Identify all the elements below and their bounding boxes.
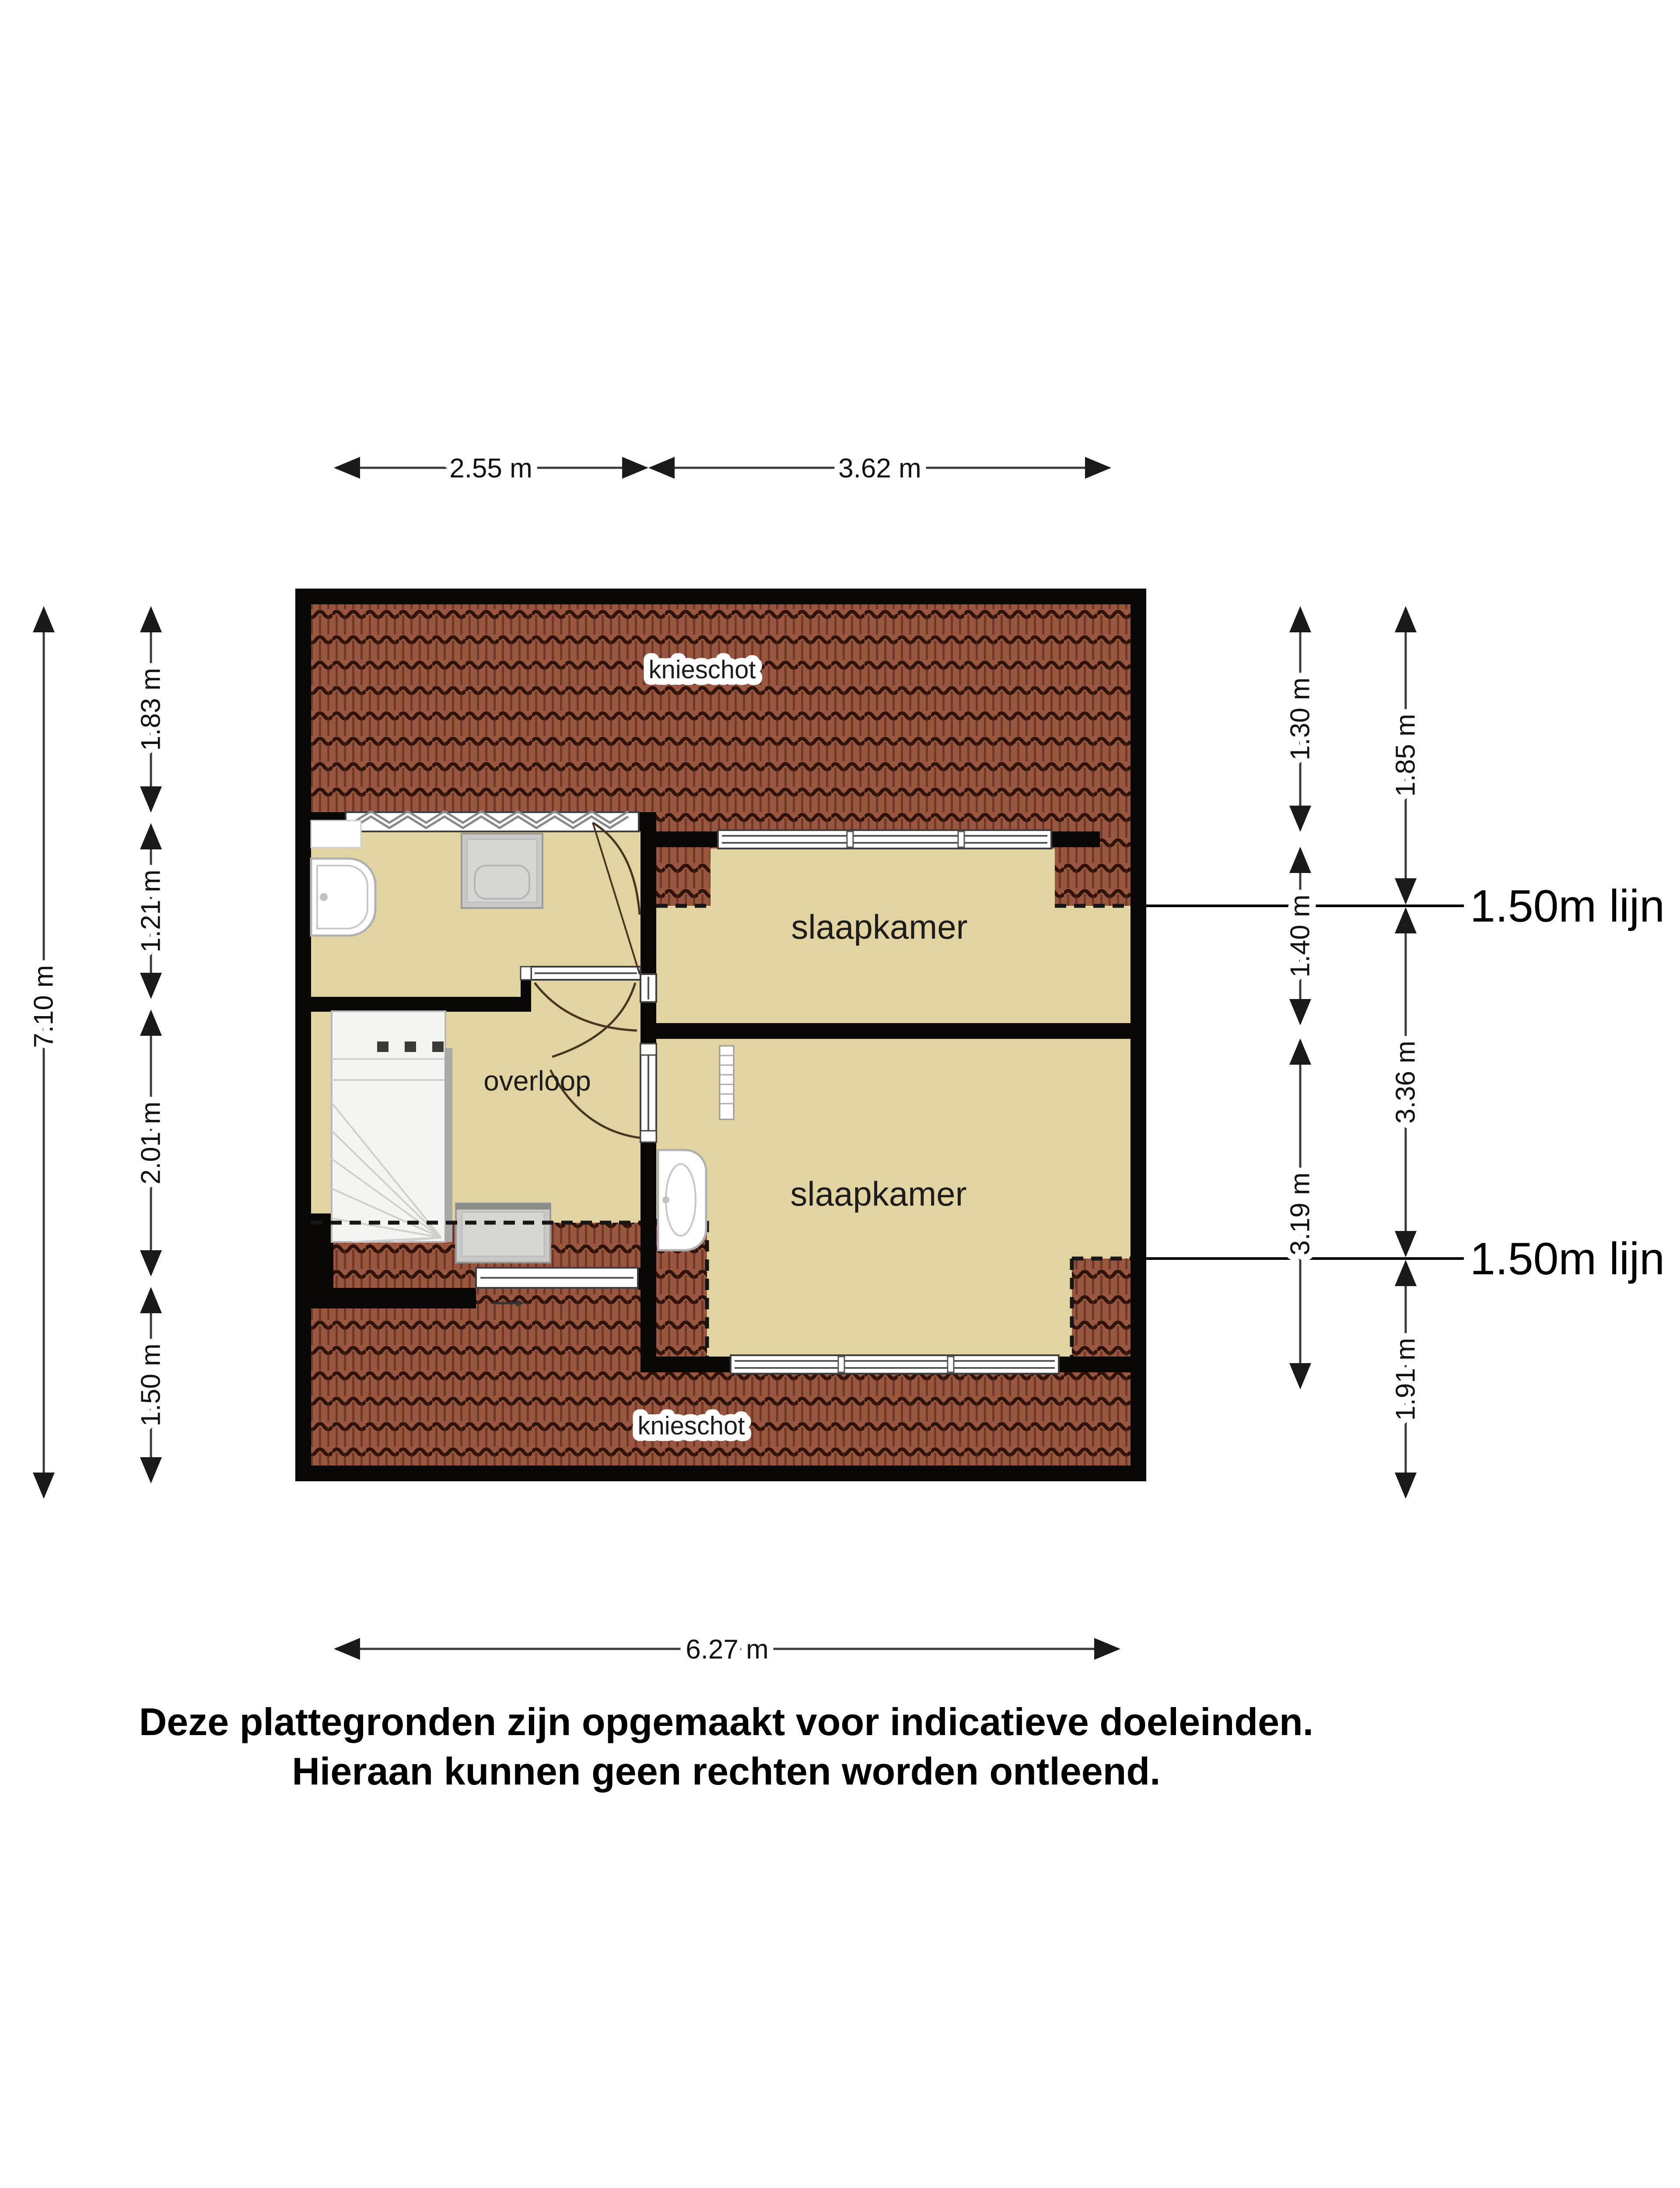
cabinet-overloop — [456, 1203, 550, 1262]
sink-slaapkamer-bottom — [658, 1150, 706, 1250]
door-overloop-topleft — [521, 967, 640, 980]
baluster-icon — [405, 1041, 416, 1052]
dim-left-2: 1.21 m — [136, 870, 166, 953]
dim-left-1: 1.83 m — [136, 668, 166, 751]
baluster-icon — [377, 1041, 388, 1052]
dim-right-outer-2: 3.36 m — [1391, 1041, 1421, 1124]
room-label-slaapkamer-bottom: slaapkamer — [790, 1175, 966, 1213]
bathtub — [311, 859, 375, 936]
room-label-slaapkamer-top: slaapkamer — [791, 908, 967, 946]
floorplan-page: knieschot slaapkamer overloop slaapkamer… — [0, 0, 1680, 2188]
baluster-icon — [432, 1041, 444, 1052]
dim-left-3: 2.01 m — [136, 1101, 166, 1185]
room-label-knieschot-top: knieschot — [648, 656, 756, 684]
dim-top-2: 3.62 m — [838, 453, 921, 484]
dim-right-outer-3: 1.91 m — [1391, 1338, 1421, 1421]
cabinet-topleft-room — [462, 834, 542, 908]
dim-right-inner-1: 1.30 m — [1285, 677, 1316, 761]
height-line-label-1: 1.50m lijn — [1470, 881, 1665, 932]
room-label-knieschot-bottom: knieschot — [637, 1412, 745, 1440]
faucet-icon — [662, 1196, 669, 1203]
faucet-icon — [320, 893, 328, 901]
floorplan-canvas: knieschot slaapkamer overloop slaapkamer… — [0, 0, 1680, 2188]
dim-left-outer: 7.10 m — [29, 965, 59, 1048]
dim-bottom: 6.27 m — [686, 1634, 769, 1665]
alcove — [311, 820, 361, 848]
stairs — [332, 1011, 452, 1242]
floor-plan: knieschot slaapkamer overloop slaapkamer… — [295, 589, 1146, 1481]
stair-rail — [444, 1048, 452, 1242]
height-line-label-2: 1.50m lijn — [1470, 1234, 1665, 1284]
window-slaapkamer-top — [718, 830, 1051, 849]
dim-right-inner-2: 1.40 m — [1285, 894, 1316, 978]
door-leaf-hatched — [720, 1046, 734, 1119]
disclaimer: Deze plattegronden zijn opgemaakt voor i… — [139, 1700, 1314, 1793]
window-slaapkamer-bottom — [731, 1355, 1059, 1374]
door-slaapkamer-top — [640, 974, 656, 1002]
dim-top-1: 2.55 m — [449, 453, 532, 484]
disclaimer-line-1: Deze plattegronden zijn opgemaakt voor i… — [139, 1700, 1314, 1743]
room-label-overloop: overloop — [483, 1065, 591, 1097]
dim-left-4: 1.50 m — [136, 1343, 166, 1427]
disclaimer-line-2: Hieraan kunnen geen rechten worden ontle… — [292, 1750, 1160, 1793]
dim-right-inner-3: 3.19 m — [1285, 1172, 1316, 1255]
dim-right-outer-1: 1.85 m — [1391, 714, 1421, 797]
